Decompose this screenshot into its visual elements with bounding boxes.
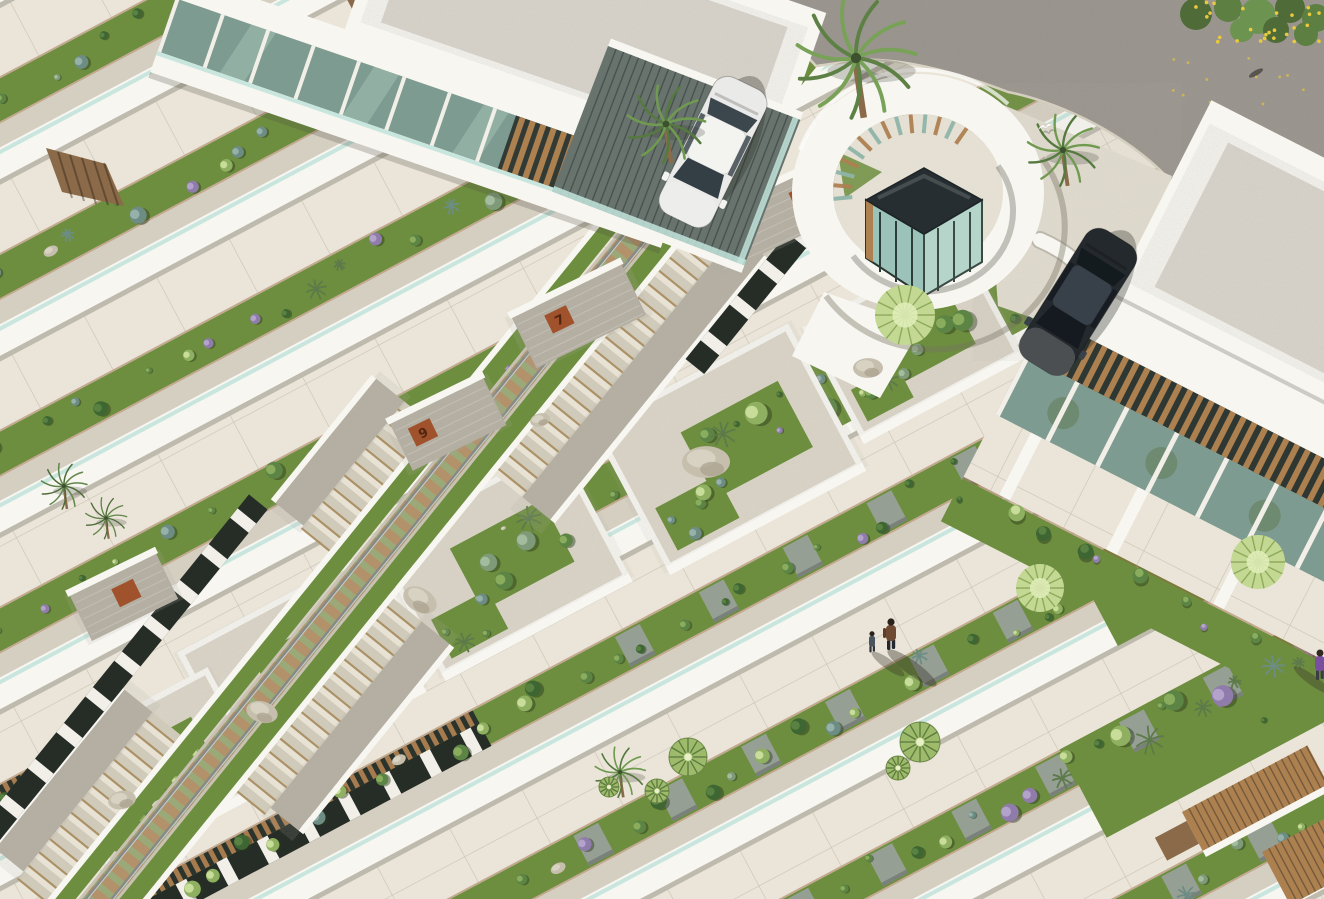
ornamental-grass-ball xyxy=(1016,564,1064,612)
cactus xyxy=(599,777,619,797)
cactus xyxy=(645,779,669,803)
cactus xyxy=(886,756,910,780)
render-stage: 579 xyxy=(0,0,1324,899)
cactus xyxy=(900,722,940,762)
ornamental-grass-ball xyxy=(1231,535,1285,589)
cactus xyxy=(669,738,707,776)
architectural-render: 579 xyxy=(0,0,1324,899)
ornamental-grass-ball xyxy=(875,285,935,345)
